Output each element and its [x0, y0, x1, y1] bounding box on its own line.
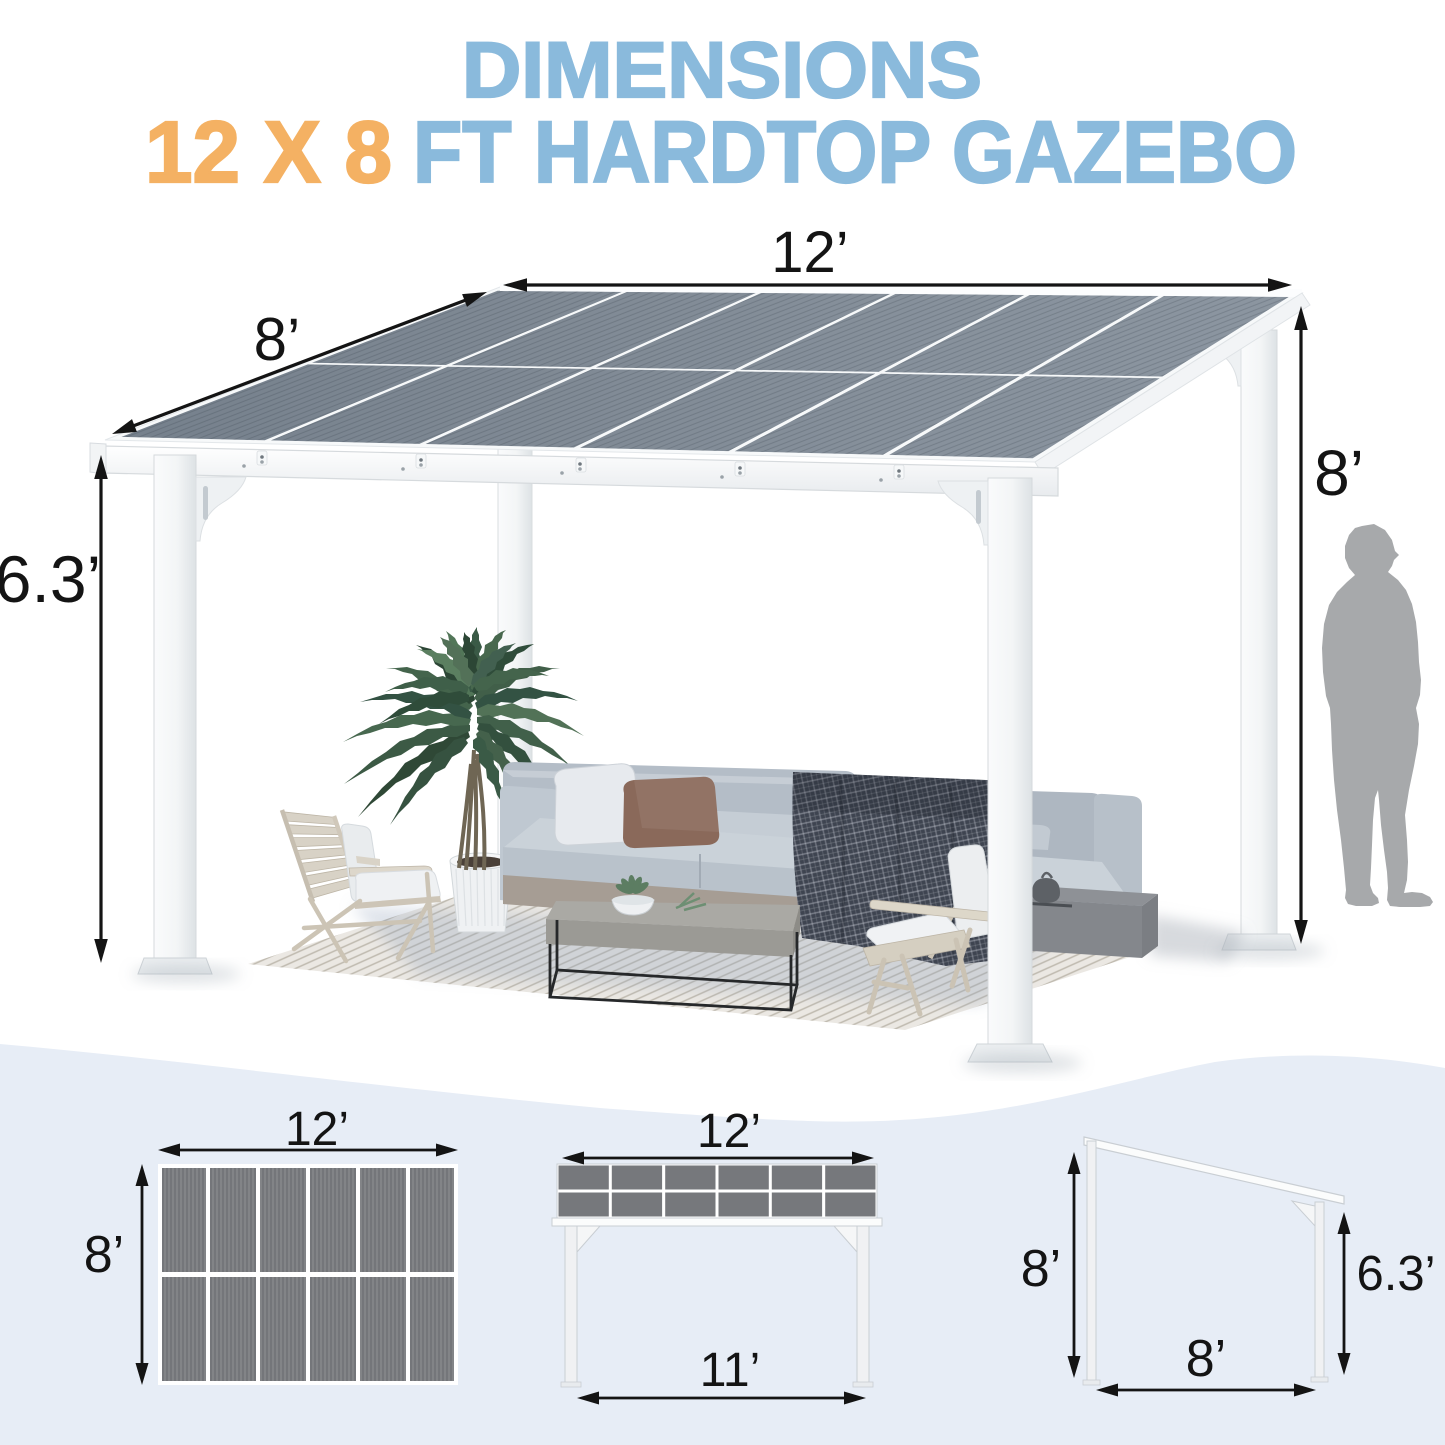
svg-text:12’: 12’ [771, 220, 848, 285]
svg-text:DIMENSIONS: DIMENSIONS [462, 25, 982, 114]
svg-text:6.3’: 6.3’ [1356, 1247, 1435, 1301]
svg-text:8’: 8’ [84, 1226, 124, 1284]
svg-text:6.3’: 6.3’ [0, 542, 101, 616]
svg-text:8’: 8’ [1021, 1240, 1061, 1298]
svg-text:12’: 12’ [697, 1105, 761, 1158]
svg-text:12’: 12’ [285, 1103, 349, 1156]
svg-text:8’: 8’ [1314, 437, 1364, 509]
svg-text:8’: 8’ [1186, 1330, 1226, 1388]
svg-text:12 X 8: 12 X 8 [145, 104, 392, 201]
svg-text:11’: 11’ [700, 1344, 761, 1397]
svg-text:8’: 8’ [254, 306, 301, 373]
svg-text:FT HARDTOP GAZEBO: FT HARDTOP GAZEBO [413, 104, 1297, 201]
